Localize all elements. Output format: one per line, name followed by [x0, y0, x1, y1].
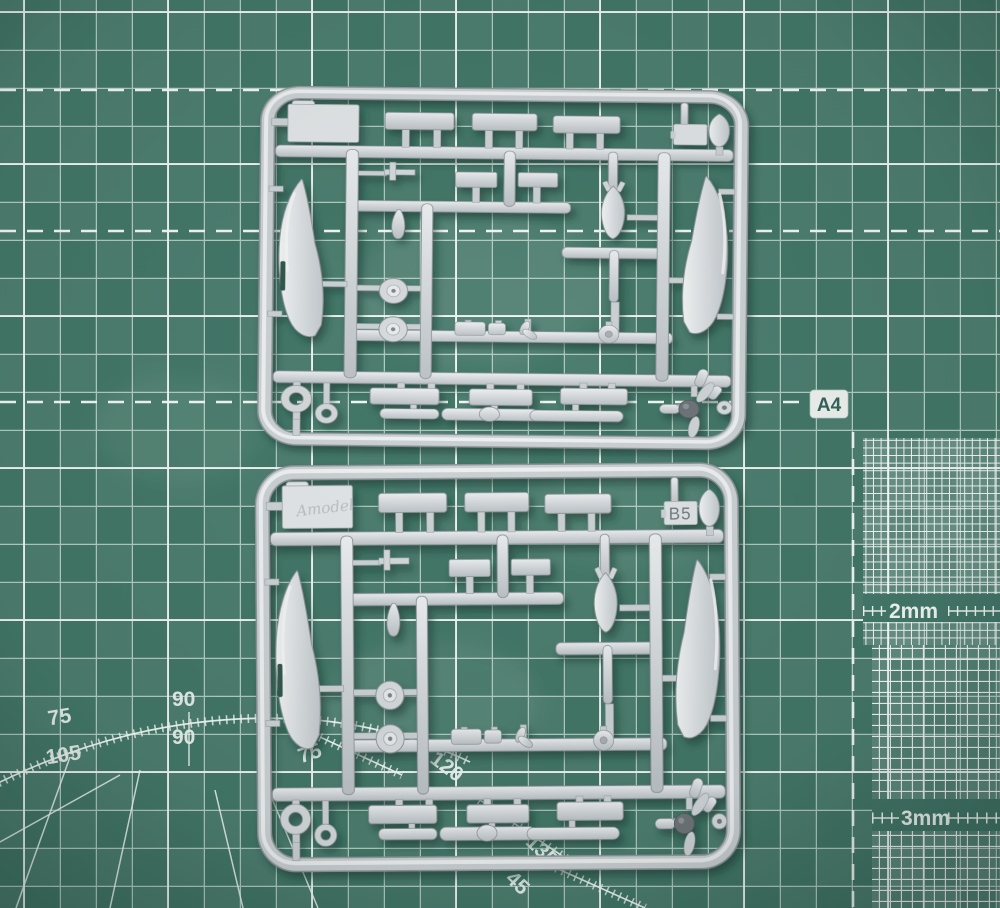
- photo-scene: 75 90 90 105 75 120 135 45 2mm: [0, 0, 1000, 908]
- photo-vignette: [0, 0, 1000, 908]
- photo-canvas: 75 90 90 105 75 120 135 45 2mm: [0, 0, 1000, 908]
